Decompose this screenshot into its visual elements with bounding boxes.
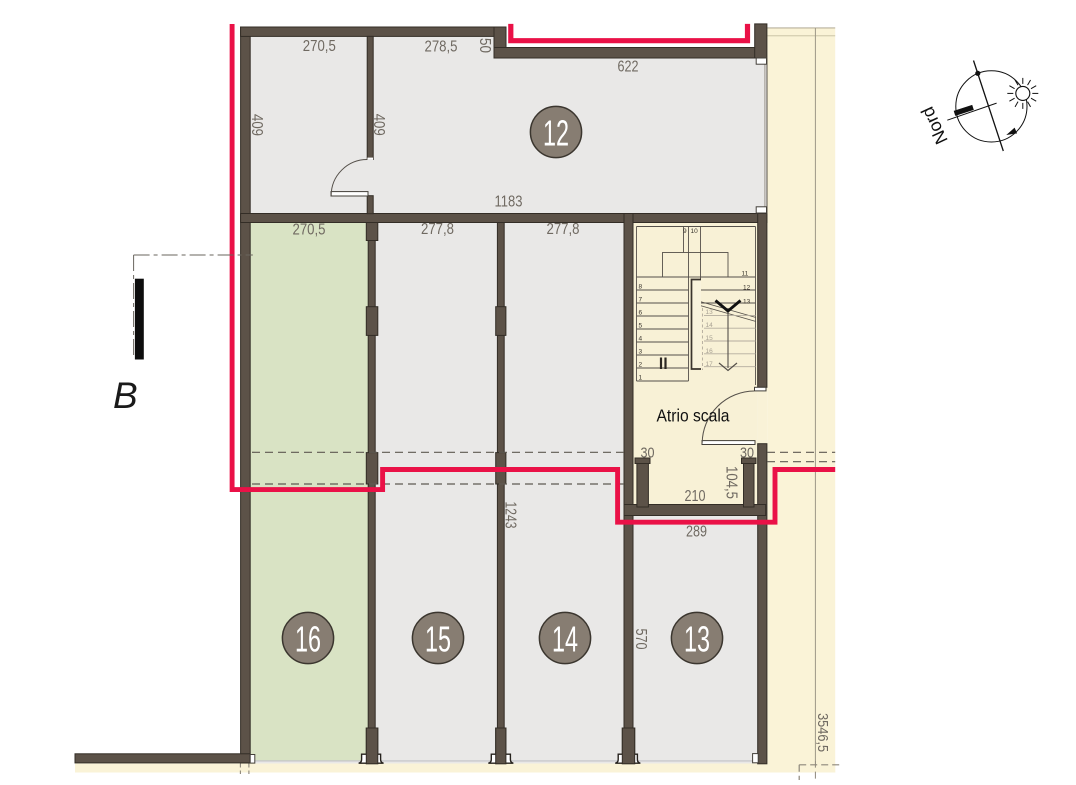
svg-text:1: 1 <box>639 375 643 382</box>
svg-text:2: 2 <box>639 362 643 369</box>
svg-text:12: 12 <box>743 285 751 292</box>
svg-text:1243: 1243 <box>502 502 519 529</box>
svg-text:Atrio scala: Atrio scala <box>657 406 730 426</box>
svg-text:289: 289 <box>686 524 707 541</box>
svg-text:13: 13 <box>706 309 714 316</box>
svg-text:10: 10 <box>691 228 699 235</box>
svg-text:3546,5: 3546,5 <box>814 713 831 752</box>
svg-text:4: 4 <box>639 336 643 343</box>
svg-text:278,5: 278,5 <box>425 39 458 56</box>
svg-text:409: 409 <box>248 114 265 136</box>
svg-text:277,8: 277,8 <box>421 221 454 238</box>
svg-text:1183: 1183 <box>495 194 523 211</box>
svg-text:9: 9 <box>683 228 687 235</box>
svg-text:11: 11 <box>742 271 749 278</box>
svg-text:3: 3 <box>639 349 643 356</box>
svg-text:570: 570 <box>632 629 649 650</box>
svg-text:13: 13 <box>684 619 710 660</box>
svg-text:13: 13 <box>743 299 751 306</box>
svg-text:30: 30 <box>740 445 754 462</box>
svg-text:16: 16 <box>706 348 714 355</box>
svg-text:12: 12 <box>543 113 569 154</box>
svg-text:15: 15 <box>425 619 451 660</box>
svg-text:270,5: 270,5 <box>303 38 336 55</box>
svg-text:14: 14 <box>552 619 578 660</box>
svg-text:277,8: 277,8 <box>547 221 580 238</box>
svg-text:6: 6 <box>639 310 643 317</box>
svg-text:30: 30 <box>641 445 655 462</box>
svg-text:50: 50 <box>476 38 493 53</box>
svg-text:210: 210 <box>685 488 706 505</box>
svg-text:15: 15 <box>706 335 714 342</box>
svg-text:5: 5 <box>639 323 643 330</box>
svg-text:622: 622 <box>618 59 639 76</box>
svg-text:104,5: 104,5 <box>722 466 739 499</box>
svg-text:14: 14 <box>706 322 714 329</box>
svg-text:409: 409 <box>370 114 387 136</box>
svg-text:7: 7 <box>639 297 643 304</box>
svg-text:17: 17 <box>706 361 714 368</box>
svg-text:8: 8 <box>639 284 643 291</box>
svg-text:270,5: 270,5 <box>293 222 326 239</box>
svg-text:B: B <box>113 375 138 416</box>
svg-text:16: 16 <box>295 619 321 660</box>
